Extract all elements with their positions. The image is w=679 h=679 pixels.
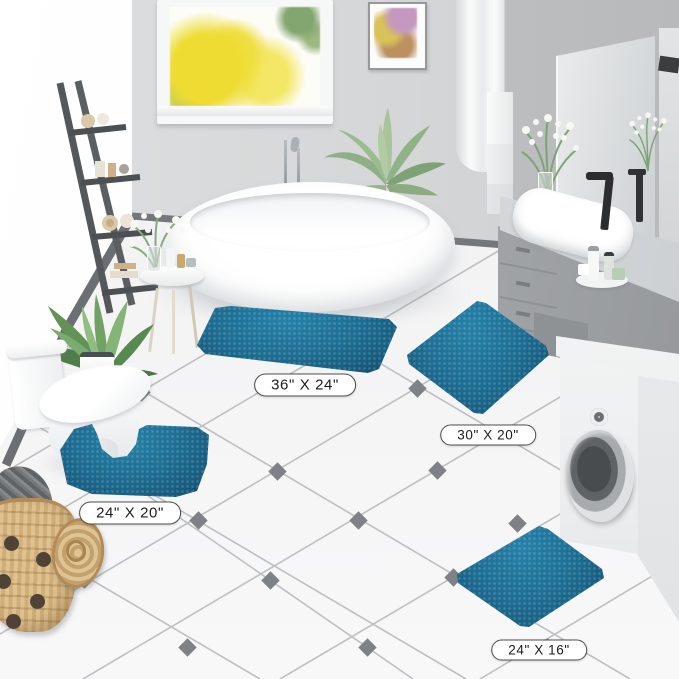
tray-jar — [578, 264, 589, 275]
soap-dispenser — [588, 246, 599, 281]
side-table-leg — [172, 290, 175, 354]
tray-jar — [612, 268, 625, 280]
basket-dot — [0, 574, 11, 589]
basket-dot — [4, 536, 19, 551]
vanity-faucet-spout — [586, 172, 613, 180]
table-toiletry-bottle — [166, 248, 175, 268]
product-photo-bathroom-scene: 36" X 24" 30" X 20" 24" X 20" 24" X 16" — [0, 0, 679, 679]
size-label-24x16: 24" X 16" — [491, 640, 587, 661]
size-label-36x24: 36" X 24" — [254, 374, 356, 397]
basket-lid-handle — [66, 540, 86, 562]
vanity-tall-shelf — [487, 92, 513, 214]
table-toiletry-jar — [186, 258, 196, 267]
basket-dot — [6, 614, 21, 629]
size-label-24x20: 24" X 20" — [79, 502, 181, 525]
table-toiletry-bottle — [177, 254, 185, 268]
washer-knob — [590, 408, 608, 426]
basket-dot — [36, 552, 51, 567]
size-label-30x20: 30" X 20" — [440, 425, 536, 446]
basket-dot — [30, 594, 45, 609]
bathtub-inner-rim — [190, 193, 430, 251]
